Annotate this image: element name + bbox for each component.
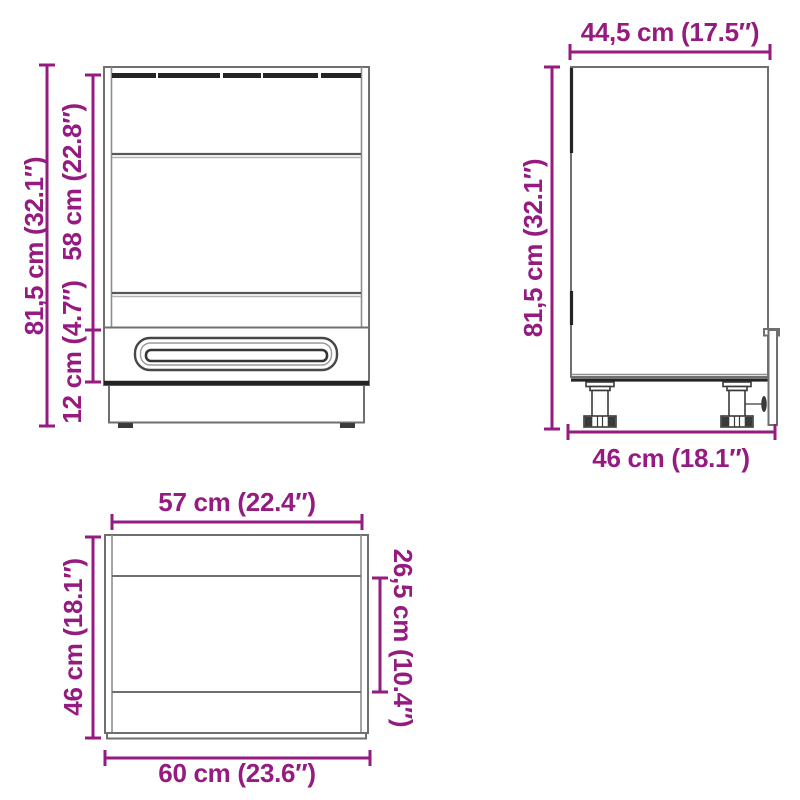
- side-bottom-depth-label: 46 cm (18.1″): [592, 443, 749, 473]
- foot-knurl: [722, 417, 730, 427]
- diagram-svg: 81,5 cm (32.1″) 58 cm (22.8″) 12 cm (4.7…: [0, 0, 800, 800]
- side-height-label: 81,5 cm (32.1″): [518, 159, 548, 338]
- front-total-height-label: 81,5 cm (32.1″): [19, 157, 49, 336]
- dim-top-depth-left: 46 cm (18.1″): [58, 537, 101, 738]
- product-dimension-diagram: 81,5 cm (32.1″) 58 cm (22.8″) 12 cm (4.7…: [0, 0, 800, 800]
- front-niche-height-label: 58 cm (22.8″): [57, 103, 87, 260]
- plinth-outline: [109, 386, 364, 423]
- front-right-foot-stub: [340, 423, 355, 428]
- foot-knurl: [585, 417, 593, 427]
- front-drawer-height-label: 12 cm (4.7″): [57, 280, 87, 423]
- cabinet-side-outline: [571, 67, 768, 377]
- dim-top-depth-right: 26,5 cm (10.4″): [372, 549, 418, 728]
- drawer-handle: [135, 338, 337, 370]
- foot-cylinder: [592, 391, 608, 417]
- drawer-front-side-profile: [769, 330, 778, 425]
- right-adjustable-foot: [721, 382, 767, 427]
- top-outer-width-label: 60 cm (23.6″): [158, 758, 315, 788]
- left-adjustable-foot: [584, 382, 616, 427]
- side-view: 44,5 cm (17.5″) 81,5 cm (32.1″) 46 cm (1…: [518, 17, 779, 473]
- dim-top-width-outer: 60 cm (23.6″): [105, 750, 370, 788]
- top-inner-width-label: 57 cm (22.4″): [158, 487, 315, 517]
- front-view: 81,5 cm (32.1″) 58 cm (22.8″) 12 cm (4.7…: [19, 65, 369, 428]
- side-top-depth-label: 44,5 cm (17.5″): [581, 17, 760, 47]
- top-view: 57 cm (22.4″) 46 cm (18.1″) 26,5 cm (10.…: [58, 487, 418, 788]
- dim-side-height: 81,5 cm (32.1″): [518, 67, 560, 429]
- handle-slot: [146, 350, 327, 361]
- dim-front-total-height: 81,5 cm (32.1″): [19, 65, 55, 426]
- foot-cylinder: [729, 391, 745, 417]
- front-edge-strip: [107, 733, 366, 739]
- front-left-foot-stub: [118, 423, 133, 428]
- top-left-depth-label: 46 cm (18.1″): [58, 558, 88, 715]
- cabinet-top-outline: [105, 535, 368, 733]
- foot-knurl: [608, 417, 616, 427]
- top-inner-depth-label: 26,5 cm (10.4″): [388, 549, 418, 728]
- foot-knurl: [745, 417, 753, 427]
- dim-side-depth-bottom: 46 cm (18.1″): [568, 424, 775, 473]
- adjuster-wing: [761, 396, 767, 412]
- dim-top-width-inner: 57 cm (22.4″): [112, 487, 362, 530]
- dim-side-depth-top: 44,5 cm (17.5″): [570, 17, 770, 60]
